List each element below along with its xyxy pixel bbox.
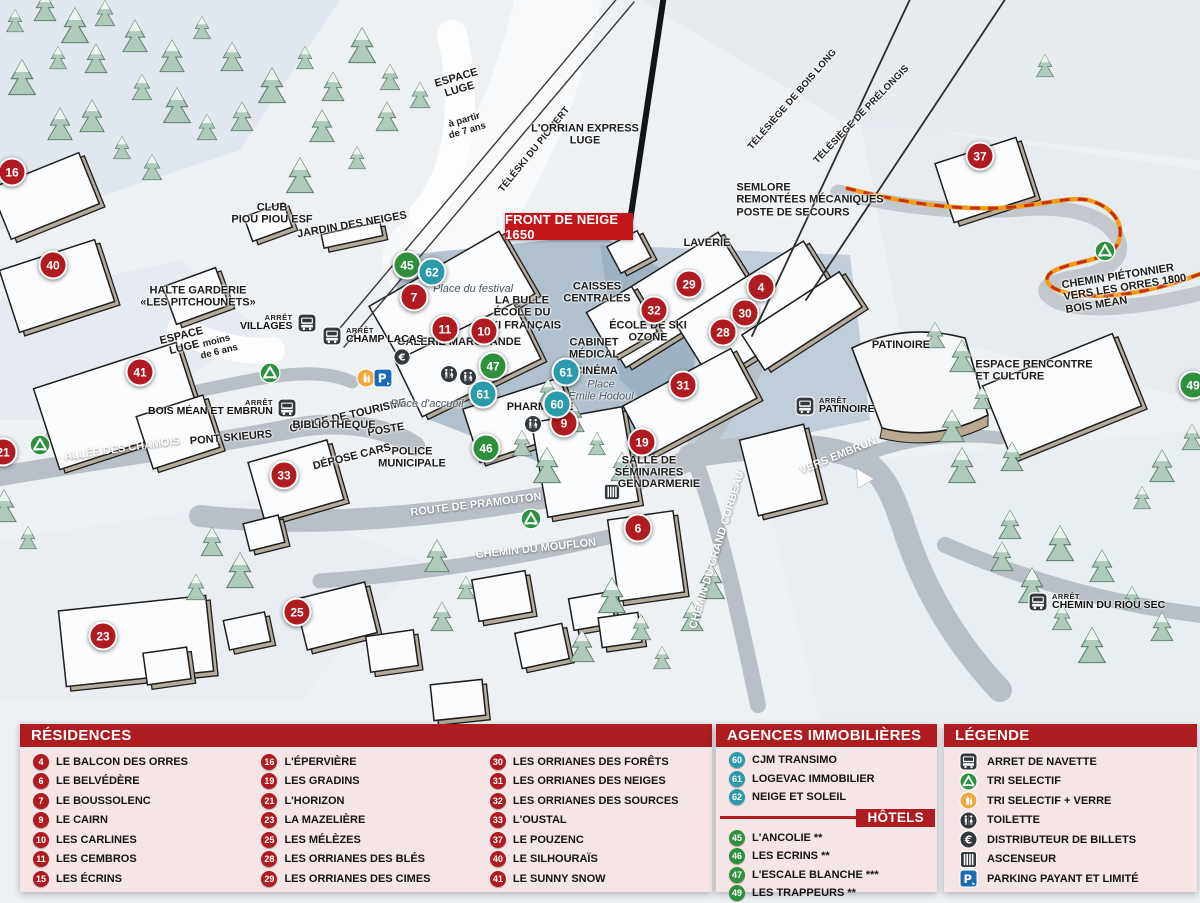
residences-column-1: 4LE BALCON DES ORRES6LE BELVÉDÈRE7LE BOU… bbox=[24, 752, 252, 889]
bus-stop-champ-lacas: ARRÊTCHAMP LACAS bbox=[322, 326, 423, 346]
map-marker-62: 62 bbox=[418, 258, 447, 287]
legend-item-label: L'ESCALE BLANCHE *** bbox=[752, 869, 879, 881]
panel-agences: AGENCES IMMOBILIÈRES 60CJM TRANSIMO61LOG… bbox=[716, 724, 937, 892]
legend-item-47: 47L'ESCALE BLANCHE *** bbox=[720, 866, 935, 885]
bus-stop-chemin-du-riou-sec: ARRÊTCHEMIN DU RIOU SEC bbox=[1028, 592, 1165, 612]
legende-item: ASCENSEUR bbox=[950, 850, 1195, 870]
legend-item-number: 11 bbox=[33, 851, 49, 867]
map-marker-25: 25 bbox=[283, 598, 312, 627]
map-label: HALTE GARDERIE«LES PITCHOUNETS» bbox=[140, 285, 256, 310]
bus-stop-name: CHEMIN DU RIOU SEC bbox=[1052, 600, 1165, 611]
map-marker-28: 28 bbox=[709, 318, 738, 347]
bus-icon bbox=[795, 396, 815, 416]
panel-residences: RÉSIDENCES 4LE BALCON DES ORRES6LE BELVÉ… bbox=[20, 724, 712, 892]
legende-header: LÉGENDE bbox=[944, 724, 1197, 747]
legend-item-number: 6 bbox=[33, 773, 49, 789]
panel-legende: LÉGENDE ARRET DE NAVETTETRI SELECTIFTRI … bbox=[944, 724, 1197, 892]
legend-item-label: L'HORIZON bbox=[284, 795, 344, 807]
legend-item-40: 40LE SILHOURAÏS bbox=[481, 850, 709, 870]
map-marker-29: 29 bbox=[675, 270, 704, 299]
legend-item-number: 30 bbox=[490, 754, 506, 770]
map-marker-4: 4 bbox=[747, 273, 776, 302]
map-label: CLUBPIOU PIOU ESF bbox=[231, 202, 312, 227]
legend-item-41: 41LE SUNNY SNOW bbox=[481, 869, 709, 889]
legende-item: €DISTRIBUTEUR DE BILLETS bbox=[950, 830, 1195, 850]
resort-map-page: { "colors":{ "header_red":"#ae1b20","pan… bbox=[0, 0, 1200, 900]
euro-icon: € bbox=[959, 830, 978, 849]
hotels-header: HÔTELS bbox=[856, 809, 935, 827]
recycle-icon bbox=[259, 362, 281, 384]
legend-item-11: 11LES CEMBROS bbox=[24, 850, 252, 870]
legende-item-label: ARRET DE NAVETTE bbox=[987, 756, 1097, 768]
legend-item-number: 47 bbox=[729, 867, 745, 883]
map-marker-41: 41 bbox=[126, 358, 155, 387]
legend-item-number: 10 bbox=[33, 832, 49, 848]
toilet-icon bbox=[959, 811, 978, 830]
legend-item-label: LES CEMBROS bbox=[56, 853, 137, 865]
map-marker-23: 23 bbox=[89, 622, 118, 651]
legend-item-62: 62NEIGE ET SOLEIL bbox=[720, 788, 935, 807]
elevator-icon bbox=[959, 850, 978, 869]
legend-item-label: LES ORRIANES DES NEIGES bbox=[513, 775, 666, 787]
legende-item-label: TRI SELECTIF + VERRE bbox=[987, 795, 1111, 807]
map-label: Place d'accueil bbox=[390, 398, 463, 410]
legend-item-label: LE SILHOURAÏS bbox=[513, 853, 598, 865]
legend-item-7: 7LE BOUSSOLENC bbox=[24, 791, 252, 811]
map-marker-49: 49 bbox=[1179, 371, 1200, 400]
map-label: SEMLOREREMONTÉES MÉCANIQUESPOSTE DE SECO… bbox=[736, 182, 883, 219]
legend-item-30: 30LES ORRIANES DES FORÊTS bbox=[481, 752, 709, 772]
legend-item-number: 28 bbox=[261, 851, 277, 867]
legende-item: PPARKING PAYANT ET LIMITÉ bbox=[950, 869, 1195, 889]
legend-item-4: 4LE BALCON DES ORRES bbox=[24, 752, 252, 772]
recycle-icon bbox=[959, 772, 978, 791]
legend-item-number: 4 bbox=[33, 754, 49, 770]
legend-item-6: 6LE BELVÉDÈRE bbox=[24, 772, 252, 792]
legend-item-label: LES MÉLÈZES bbox=[284, 834, 360, 846]
legend-item-number: 49 bbox=[729, 885, 745, 901]
legend-item-number: 41 bbox=[490, 871, 506, 887]
map-label: GENDARMERIE bbox=[618, 478, 701, 490]
map-label: ESPACE RENCONTREET CULTURE bbox=[975, 359, 1092, 384]
legend-item-number: 9 bbox=[33, 812, 49, 828]
legend-item-label: LES TRAPPEURS ** bbox=[752, 887, 856, 899]
legend-item-23: 23LA MAZELIÈRE bbox=[252, 811, 480, 831]
legende-item: TOILETTE bbox=[950, 811, 1195, 831]
legend-item-label: LES CARLINES bbox=[56, 834, 137, 846]
legend-item-16: 16L'ÉPERVIÈRE bbox=[252, 752, 480, 772]
recycle-glass-icon bbox=[959, 791, 978, 810]
svg-text:€: € bbox=[964, 834, 972, 847]
bus-icon bbox=[1028, 592, 1048, 612]
parking-icon: P bbox=[959, 869, 978, 888]
bus-stop-name: CHAMP LACAS bbox=[346, 334, 423, 345]
map-label: SALLE DESÉMINAIRES bbox=[615, 455, 683, 480]
map-label: LAVERIE bbox=[684, 237, 731, 249]
legend-item-number: 37 bbox=[490, 832, 506, 848]
legend-item-number: 61 bbox=[729, 771, 745, 787]
legend-item-number: 23 bbox=[261, 812, 277, 828]
legend-item-45: 45L'ANCOLIE ** bbox=[720, 829, 935, 848]
parking-icon: P bbox=[373, 368, 393, 388]
legend-item-21: 21L'HORIZON bbox=[252, 791, 480, 811]
map-marker-19: 19 bbox=[628, 428, 657, 457]
legend-item-label: LE BALCON DES ORRES bbox=[56, 756, 188, 768]
legend-item-label: LE POUZENC bbox=[513, 834, 584, 846]
legend-item-number: 15 bbox=[33, 871, 49, 887]
legend-item-37: 37LE POUZENC bbox=[481, 830, 709, 850]
map-label: BIBLIOTHÈQUE bbox=[292, 419, 375, 431]
legend-item-32: 32LES ORRIANES DES SOURCES bbox=[481, 791, 709, 811]
legend-item-label: L'ÉPERVIÈRE bbox=[284, 756, 356, 768]
legend-item-label: LES ORRIANES DES CIMES bbox=[284, 873, 430, 885]
map-marker-37: 37 bbox=[966, 142, 995, 171]
legende-item-label: TOILETTE bbox=[987, 814, 1040, 826]
map-label: CABINETMÉDICAL bbox=[569, 337, 619, 362]
legend-item-61: 61LOGEVAC IMMOBILIER bbox=[720, 770, 935, 789]
legend-item-label: LA MAZELIÈRE bbox=[284, 814, 365, 826]
legend-item-label: LOGEVAC IMMOBILIER bbox=[752, 773, 875, 785]
legende-item: TRI SELECTIF bbox=[950, 772, 1195, 792]
legend-item-label: LES ECRINS ** bbox=[752, 850, 830, 862]
bus-stop-name: PATINOIRE bbox=[819, 404, 875, 415]
legend-item-46: 46LES ECRINS ** bbox=[720, 847, 935, 866]
map-label: PATINOIRE bbox=[872, 339, 930, 351]
residences-header: RÉSIDENCES bbox=[20, 724, 712, 747]
map-marker-60: 60 bbox=[543, 390, 572, 419]
bus-icon bbox=[322, 326, 342, 346]
recycle-icon bbox=[1094, 240, 1116, 262]
legend-item-label: LE CAIRN bbox=[56, 814, 108, 826]
map-label: CAISSESCENTRALES bbox=[563, 281, 630, 306]
recycle-icon bbox=[520, 508, 542, 530]
legend-item-31: 31LES ORRIANES DES NEIGES bbox=[481, 772, 709, 792]
legende-item-label: PARKING PAYANT ET LIMITÉ bbox=[987, 873, 1139, 885]
map-marker-10: 10 bbox=[470, 317, 499, 346]
legend-item-number: 32 bbox=[490, 793, 506, 809]
legende-items: ARRET DE NAVETTETRI SELECTIFTRI SELECTIF… bbox=[944, 747, 1197, 889]
legende-item-label: DISTRIBUTEUR DE BILLETS bbox=[987, 834, 1136, 846]
map-marker-6: 6 bbox=[624, 514, 653, 543]
bus-stop-villages: ARRÊTVILLAGES bbox=[240, 313, 317, 333]
map-marker-32: 32 bbox=[640, 296, 669, 325]
legend-item-number: 40 bbox=[490, 851, 506, 867]
svg-text:P: P bbox=[964, 872, 972, 886]
map-marker-46: 46 bbox=[472, 434, 501, 463]
legend-item-label: LES GRADINS bbox=[284, 775, 359, 787]
legend-item-label: LE BELVÉDÈRE bbox=[56, 775, 140, 787]
legend-item-number: 19 bbox=[261, 773, 277, 789]
svg-text:€: € bbox=[397, 353, 405, 364]
legend-item-9: 9LE CAIRN bbox=[24, 811, 252, 831]
map-marker-61: 61 bbox=[469, 380, 498, 409]
hotels-items: 45L'ANCOLIE **46LES ECRINS **47L'ESCALE … bbox=[720, 829, 935, 903]
legend-item-number: 31 bbox=[490, 773, 506, 789]
legend-item-label: L'ANCOLIE ** bbox=[752, 832, 822, 844]
legend-item-label: LE SUNNY SNOW bbox=[513, 873, 606, 885]
agences-items: 60CJM TRANSIMO61LOGEVAC IMMOBILIER62NEIG… bbox=[720, 751, 935, 807]
map-label: PlaceÉmile Hodoul bbox=[568, 379, 633, 404]
bus-stop-name: VILLAGES bbox=[240, 321, 293, 332]
legend-item-number: 33 bbox=[490, 812, 506, 828]
legend-item-number: 25 bbox=[261, 832, 277, 848]
map-label: Place du festival bbox=[433, 283, 513, 295]
svg-text:P: P bbox=[378, 372, 387, 386]
bus-stop-bois-m-an-et-embrun: ARRÊTBOIS MÉAN ET EMBRUN bbox=[148, 398, 297, 418]
legend-item-number: 62 bbox=[729, 789, 745, 805]
legend-item-label: NEIGE ET SOLEIL bbox=[752, 791, 846, 803]
bus-icon bbox=[297, 313, 317, 333]
bus-stop-patinoire: ARRÊTPATINOIRE bbox=[795, 396, 875, 416]
legend-item-number: 45 bbox=[729, 830, 745, 846]
legend-item-number: 29 bbox=[261, 871, 277, 887]
legend-item-label: LES ORRIANES DES FORÊTS bbox=[513, 756, 669, 768]
map-marker-40: 40 bbox=[39, 251, 68, 280]
legend-item-25: 25LES MÉLÈZES bbox=[252, 830, 480, 850]
recycle-icon bbox=[29, 434, 51, 456]
legend-item-60: 60CJM TRANSIMO bbox=[720, 751, 935, 770]
legend-item-number: 21 bbox=[261, 793, 277, 809]
legend-item-33: 33L'OUSTAL bbox=[481, 811, 709, 831]
legend-item-label: CJM TRANSIMO bbox=[752, 754, 837, 766]
map-label: CINÉMA bbox=[574, 365, 617, 377]
legend-item-label: LES ORRIANES DES BLÉS bbox=[284, 853, 425, 865]
map-marker-61: 61 bbox=[552, 358, 581, 387]
legend-item-label: L'OUSTAL bbox=[513, 814, 567, 826]
legend-item-label: LE BOUSSOLENC bbox=[56, 795, 151, 807]
legend-item-label: LES ÉCRINS bbox=[56, 873, 122, 885]
toilet-icon bbox=[524, 415, 543, 434]
map-label: L'ORRIAN EXPRESSLUGE bbox=[531, 123, 639, 148]
legende-item: TRI SELECTIF + VERRE bbox=[950, 791, 1195, 811]
euro-icon: € bbox=[393, 348, 411, 366]
map-marker-47: 47 bbox=[479, 352, 508, 381]
legend-item-15: 15LES ÉCRINS bbox=[24, 869, 252, 889]
map-marker-31: 31 bbox=[669, 371, 698, 400]
legend-item-19: 19LES GRADINS bbox=[252, 772, 480, 792]
legende-item-label: ASCENSEUR bbox=[987, 853, 1056, 865]
legend-item-28: 28LES ORRIANES DES BLÉS bbox=[252, 850, 480, 870]
legend-item-10: 10LES CARLINES bbox=[24, 830, 252, 850]
hotels-header-bar: HÔTELS bbox=[720, 809, 935, 827]
residences-column-2: 16L'ÉPERVIÈRE19LES GRADINS21L'HORIZON23L… bbox=[252, 752, 480, 889]
front-de-neige-badge: FRONT DE NEIGE 1650 bbox=[505, 213, 633, 240]
legende-item: ARRET DE NAVETTE bbox=[950, 752, 1195, 772]
bus-icon bbox=[959, 752, 978, 771]
bus-stop-name: BOIS MÉAN ET EMBRUN bbox=[148, 406, 273, 417]
map-marker-33: 33 bbox=[270, 461, 299, 490]
legend-item-number: 16 bbox=[261, 754, 277, 770]
bus-icon bbox=[277, 398, 297, 418]
legend-item-number: 60 bbox=[729, 752, 745, 768]
legend-item-number: 46 bbox=[729, 848, 745, 864]
legend-item-29: 29LES ORRIANES DES CIMES bbox=[252, 869, 480, 889]
toilet-icon bbox=[440, 365, 459, 384]
legend-item-number: 7 bbox=[33, 793, 49, 809]
legend-item-label: LES ORRIANES DES SOURCES bbox=[513, 795, 679, 807]
agences-header: AGENCES IMMOBILIÈRES bbox=[716, 724, 937, 747]
residences-column-3: 30LES ORRIANES DES FORÊTS31LES ORRIANES … bbox=[481, 752, 709, 889]
map-marker-7: 7 bbox=[400, 283, 429, 312]
map-marker-11: 11 bbox=[431, 315, 460, 344]
legende-item-label: TRI SELECTIF bbox=[987, 775, 1061, 787]
